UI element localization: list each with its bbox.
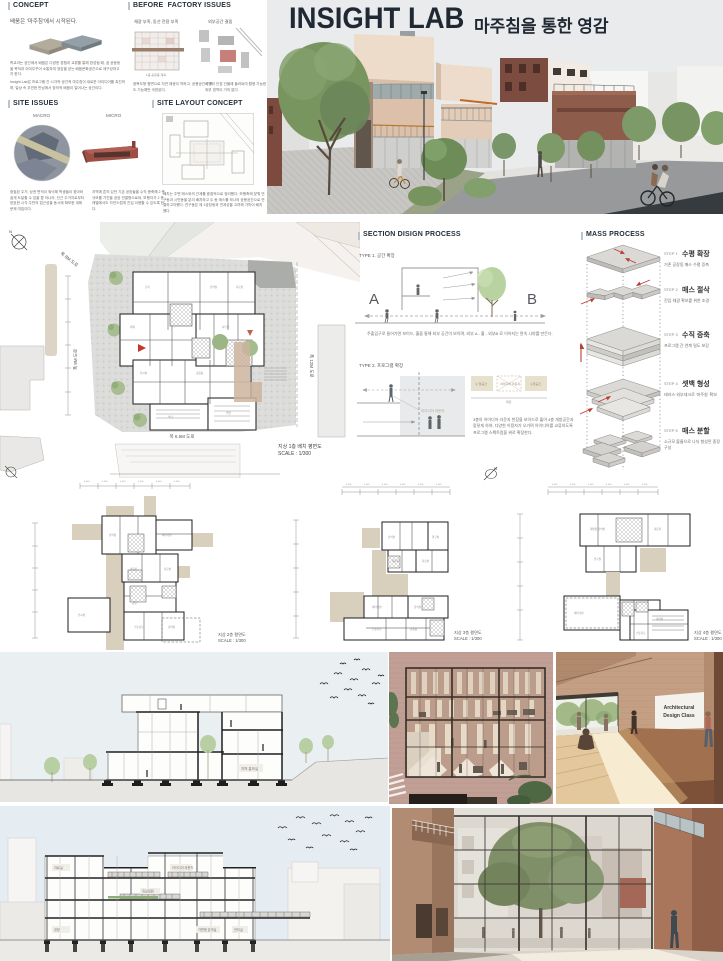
svg-text:자료실: 자료실	[164, 567, 172, 571]
svg-text:공용홀: 공용홀	[196, 371, 204, 375]
svg-text:옥상정원: 옥상정원	[142, 889, 154, 894]
svg-text:4,500: 4,500	[588, 484, 594, 486]
svg-text:전시실: 전시실	[78, 613, 86, 617]
svg-text:자료실: 자료실	[236, 285, 244, 289]
svg-text:4,500: 4,500	[120, 481, 126, 483]
svg-text:전시실: 전시실	[140, 371, 148, 375]
svg-text:강의실: 강의실	[388, 535, 396, 539]
svg-text:4,500: 4,500	[138, 481, 144, 483]
svg-text:강의실: 강의실	[210, 285, 218, 289]
svg-text:공방: 공방	[54, 927, 60, 932]
svg-text:4,500: 4,500	[552, 484, 558, 486]
svg-text:SCALE : 1/300: SCALE : 1/300	[278, 451, 311, 457]
svg-text:4,500: 4,500	[84, 481, 90, 483]
svg-text:지역 홍보실: 지역 홍보실	[241, 766, 258, 771]
svg-text:수 업공간: 수 업공간	[475, 381, 487, 386]
svg-text:강의실: 강의실	[168, 625, 176, 629]
svg-text:4,500: 4,500	[156, 481, 162, 483]
svg-text:4,500: 4,500	[174, 481, 180, 483]
svg-text:4,500: 4,500	[382, 484, 388, 486]
svg-text:A: A	[369, 291, 379, 308]
svg-text:스튜디오: 스튜디오	[134, 625, 144, 629]
svg-text:스튜디오: 스튜디오	[636, 631, 646, 635]
svg-text:아이디어 라운지: 아이디어 라운지	[421, 408, 445, 413]
svg-text:N: N	[494, 466, 497, 471]
svg-text:사무실: 사무실	[222, 325, 230, 329]
svg-text:SCALE : 1/300: SCALE : 1/300	[454, 636, 482, 641]
svg-text:N: N	[9, 229, 12, 234]
svg-text:Architectural: Architectural	[664, 705, 695, 711]
svg-text:아이디어 라운지: 아이디어 라운지	[500, 381, 520, 386]
svg-text:4,500: 4,500	[624, 484, 630, 486]
svg-text:연구실: 연구실	[594, 557, 602, 561]
svg-text:B: B	[527, 291, 537, 308]
svg-text:강의실: 강의실	[414, 605, 422, 609]
svg-text:4,500: 4,500	[642, 484, 648, 486]
svg-text:확장: 확장	[506, 399, 512, 404]
svg-text:지상 1층 배치 평면도: 지상 1층 배치 평면도	[278, 443, 322, 450]
svg-text:자료실: 자료실	[422, 559, 430, 563]
svg-text:세미나실: 세미나실	[162, 533, 172, 537]
svg-text:4,500: 4,500	[418, 484, 424, 486]
svg-text:연구실: 연구실	[432, 535, 440, 539]
svg-text:로비: 로비	[145, 285, 150, 289]
svg-text:수업공간: 수업공간	[530, 381, 541, 386]
svg-text:1층 공유홀 계획: 1층 공유홀 계획	[146, 72, 166, 77]
svg-text:4,500: 4,500	[436, 484, 442, 486]
svg-text:스튜디오: 스튜디오	[372, 627, 382, 631]
svg-text:SCALE : 1/300: SCALE : 1/300	[694, 636, 722, 641]
svg-text:공용홀: 공용홀	[410, 627, 418, 631]
svg-text:4,500: 4,500	[102, 481, 108, 483]
svg-text:4,500: 4,500	[346, 484, 352, 486]
svg-text:관리실: 관리실	[234, 927, 243, 932]
svg-text:지상 3층 평면도: 지상 3층 평면도	[454, 629, 482, 636]
svg-text:4,500: 4,500	[606, 484, 612, 486]
svg-text:아이디어 라운지: 아이디어 라운지	[172, 865, 193, 870]
svg-text:식당: 식당	[168, 415, 173, 419]
svg-text:SCALE : 1/300: SCALE : 1/300	[218, 638, 246, 643]
svg-text:강의실: 강의실	[109, 533, 117, 537]
svg-text:Design Class: Design Class	[663, 713, 695, 719]
svg-text:4,500: 4,500	[400, 484, 406, 486]
svg-text:카페: 카페	[130, 325, 135, 329]
svg-text:세미나실: 세미나실	[574, 611, 584, 615]
svg-text:자료실: 자료실	[54, 865, 63, 870]
svg-text:세미나실: 세미나실	[372, 605, 382, 609]
svg-text:가변형 강의실: 가변형 강의실	[198, 927, 217, 932]
svg-text:주방: 주방	[226, 411, 231, 415]
svg-text:강의실: 강의실	[656, 617, 664, 621]
svg-text:라운지: 라운지	[392, 559, 400, 563]
svg-text:공방: 공방	[132, 601, 137, 605]
svg-text:개방형 강의실: 개방형 강의실	[590, 527, 606, 531]
svg-text:라운지: 라운지	[130, 567, 138, 571]
svg-text:지상 4층 평면도: 지상 4층 평면도	[694, 629, 722, 636]
svg-text:4,500: 4,500	[364, 484, 370, 486]
svg-text:지상 2층 평면도: 지상 2층 평면도	[218, 631, 246, 638]
svg-text:라운지: 라운지	[654, 527, 662, 531]
svg-text:4,500: 4,500	[570, 484, 576, 486]
